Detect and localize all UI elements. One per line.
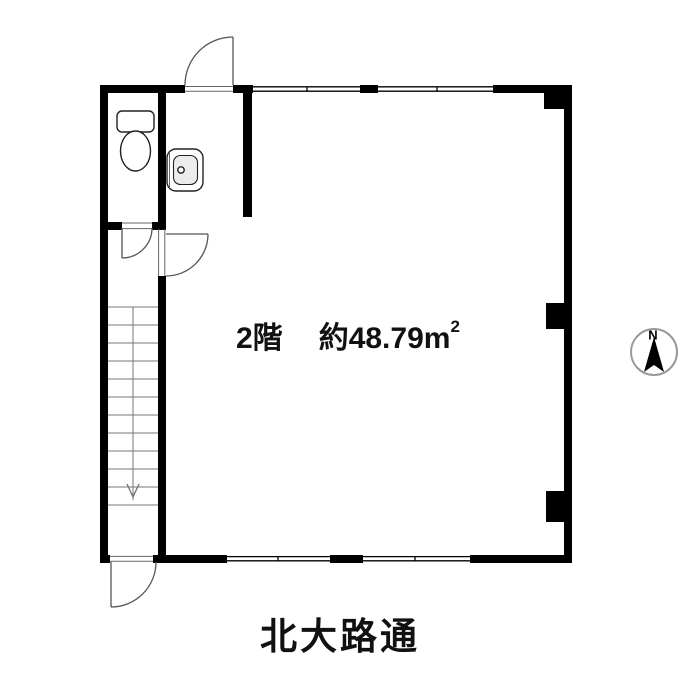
- room-area-unit-exponent: 2: [450, 318, 459, 335]
- room-area-prefix: 約: [319, 322, 349, 355]
- wall-top-left: [100, 85, 185, 93]
- room-area-label: 2階 約 48.79 m 2: [236, 322, 460, 355]
- wall-divider-stub: [243, 85, 252, 217]
- wall-bottom-mid: [330, 555, 363, 563]
- window-top-1: [253, 87, 360, 91]
- staircase: [108, 307, 158, 505]
- pillar-mid-right: [546, 303, 572, 329]
- pillar-bottom-right: [546, 491, 572, 522]
- wall-toilet-bottom-left: [100, 222, 122, 230]
- pillar-top-right: [544, 85, 572, 109]
- window-top-2: [378, 87, 493, 91]
- room-area-value: 48.79: [349, 322, 424, 355]
- toilet-icon: [117, 111, 154, 171]
- wall-left: [100, 85, 108, 563]
- compass-north-label: N: [648, 328, 657, 343]
- room-area-unit: m: [424, 322, 451, 355]
- wall-stairwell-upper: [158, 85, 166, 229]
- door-toilet: [122, 223, 152, 258]
- wall-top-mid: [360, 85, 378, 93]
- wall-bottom-right: [470, 555, 572, 563]
- wall-toilet-bottom-right: [152, 222, 166, 230]
- street-name-label: 北大路通: [260, 606, 420, 660]
- window-bottom-2: [363, 557, 470, 561]
- door-top-entrance: [185, 37, 233, 91]
- floor-plan-canvas: 2階 約 48.79 m 2 北大路通 N: [0, 0, 690, 676]
- window-bottom-1: [227, 557, 330, 561]
- room-floor-label: 2階: [236, 322, 283, 355]
- sink-icon: [167, 149, 203, 191]
- door-hall: [159, 229, 208, 276]
- wall-stairwell-lower: [158, 276, 166, 563]
- door-bottom-entrance: [110, 556, 156, 607]
